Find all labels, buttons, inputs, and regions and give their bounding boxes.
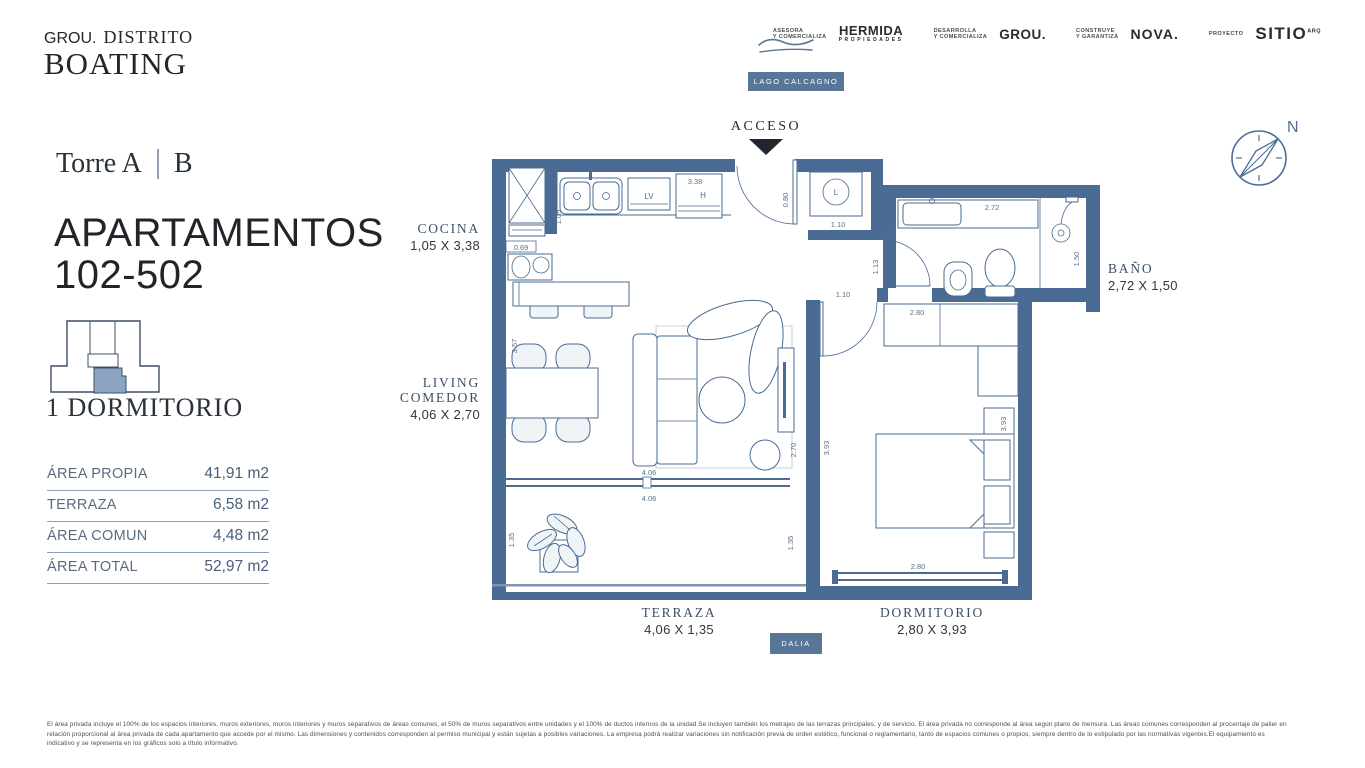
brand-distrito: DISTRITO (103, 27, 193, 48)
dim-3-93-a: 3.93 (822, 441, 831, 456)
dim-0-69: 0.69 (514, 243, 529, 252)
washer: L (810, 172, 862, 216)
kitchen-sink (560, 172, 622, 214)
disclaimer-line: indicativo y se representa en los gráfic… (47, 739, 1292, 749)
dishwasher-label: LV (644, 192, 654, 201)
fridge (509, 168, 545, 236)
bidet (944, 262, 972, 296)
dim-1-13: 1.13 (871, 260, 880, 275)
dim-1-50-b: 1.50 (1072, 252, 1081, 267)
table-row: ÁREA PROPIA 41,91 m2 (47, 460, 269, 491)
tower-title: Torre A B (56, 148, 193, 180)
room-label-bano: BAÑO 2,72 X 1,50 (1108, 261, 1258, 293)
area-label: ÁREA COMUN (47, 528, 148, 544)
room-dims: 4,06 X 1,35 (619, 622, 739, 637)
room-name: BAÑO (1108, 261, 1258, 276)
dim-1-35-b: 1.35 (786, 536, 795, 551)
compass-icon: N (1225, 116, 1310, 194)
partner-grou: DESARROLLA Y COMERCIALIZA GROU. (934, 27, 1046, 42)
toilet (985, 249, 1015, 297)
tv-console (778, 348, 794, 432)
building-locator-icon (48, 310, 163, 396)
table-row: TERRAZA 6,58 m2 (47, 491, 269, 522)
room-label-living: LIVING COMEDOR 4,06 X 2,70 (370, 375, 480, 422)
entrance-door (737, 160, 797, 224)
title-line1: APARTAMENTOS (54, 212, 384, 254)
breakfast-bar (513, 282, 629, 318)
shower (1040, 197, 1078, 288)
room-dims: 2,80 X 3,93 (872, 622, 992, 637)
room-dims: 1,05 X 3,38 (355, 238, 480, 253)
sofa (633, 292, 792, 470)
bedroom-window (832, 570, 1008, 584)
nightstand-bottom (984, 532, 1014, 558)
partner-logos: ASESORA Y COMERCIALIZA HERMIDA PROPIEDAD… (773, 20, 1321, 48)
area-value: 52,97 m2 (204, 558, 269, 576)
dim-4-06-a: 4.06 (642, 468, 657, 477)
plant (524, 510, 589, 575)
dim-3-93-b: 3.93 (999, 417, 1008, 432)
dim-2-70: 2.70 (789, 443, 798, 458)
room-label-cocina: COCINA 1,05 X 3,38 (355, 221, 480, 253)
terrace-railing (492, 584, 806, 587)
disclaimer-line: El área privada incluye el 100% de los e… (47, 720, 1292, 730)
page-title: APARTAMENTOS 102-502 (54, 212, 384, 296)
area-table: ÁREA PROPIA 41,91 m2 TERRAZA 6,58 m2 ÁRE… (47, 460, 269, 584)
room-name: LIVING COMEDOR (370, 375, 480, 405)
room-name: TERRAZA (619, 605, 739, 620)
dim-1-10-b: 1.10 (836, 290, 851, 299)
legal-disclaimer: El área privada incluye el 100% de los e… (47, 720, 1292, 749)
bedroom-door (820, 302, 877, 356)
dim-1-50-a: 1.50 (885, 227, 894, 242)
north-label: N (1287, 119, 1299, 136)
partner-sitio: PROYECTO SITIOARQ (1209, 24, 1321, 44)
floorplan-brochure-page: { "brand": { "grou": "GROU.", "distrito"… (0, 0, 1365, 768)
area-value: 41,91 m2 (204, 465, 269, 483)
dim-2-72: 2.72 (985, 203, 1000, 212)
dim-3-38: 3.38 (688, 177, 703, 186)
oven: 3.38 H (676, 174, 722, 218)
title-line2: 102-502 (54, 254, 384, 296)
partner-role: DESARROLLA Y COMERCIALIZA (934, 28, 988, 41)
nova-logo: NOVA. (1131, 26, 1179, 42)
street-badge: DALIA (770, 633, 822, 654)
tower-a: Torre A (56, 148, 142, 180)
room-name: DORMITORIO (872, 605, 992, 620)
dim-2-80-a: 2.80 (910, 308, 925, 317)
room-dims: 2,72 X 1,50 (1108, 278, 1258, 293)
sitio-logo: SITIOARQ (1255, 24, 1321, 44)
wave-icon (755, 33, 817, 57)
lake-badge: LAGO CALCAGNO (748, 72, 844, 91)
partner-role: CONSTRUYE Y GARANTIZA (1076, 28, 1119, 41)
brand-boating: BOATING (44, 46, 193, 82)
laundry-tub: 0.69 (506, 241, 552, 280)
dim-2-80-b: 2.80 (911, 562, 926, 571)
area-label: ÁREA PROPIA (47, 466, 148, 482)
access-label: ACCESO (716, 119, 816, 135)
tower-b: B (174, 148, 193, 180)
highlighted-unit (94, 368, 126, 393)
partner-nova: CONSTRUYE Y GARANTIZA NOVA. (1076, 26, 1179, 42)
living-window (506, 477, 790, 488)
washer-label: L (834, 188, 839, 197)
room-label-dormitorio: DORMITORIO 2,80 X 3,93 (872, 605, 992, 637)
grou-logo: GROU. (999, 27, 1046, 42)
room-name: COCINA (355, 221, 480, 236)
tower-divider (157, 149, 159, 179)
dishwasher: LV (628, 178, 670, 210)
partner-role: PROYECTO (1209, 31, 1244, 38)
table-row: ÁREA TOTAL 52,97 m2 (47, 553, 269, 584)
dim-1-35-a: 1.35 (507, 533, 516, 548)
area-value: 4,48 m2 (213, 527, 269, 545)
hermida-logo: HERMIDA (839, 25, 904, 37)
dim-1-10-a: 1.10 (831, 220, 846, 229)
dim-4-06-b: 4.06 (642, 494, 657, 503)
room-dims: 4,06 X 2,70 (370, 407, 480, 422)
disclaimer-line: relación proporcional al área privada de… (47, 730, 1292, 740)
bedrooms-label: 1 DORMITORIO (46, 393, 243, 423)
table-row: ÁREA COMUN 4,48 m2 (47, 522, 269, 553)
hermida-sub: PROPIEDADES (839, 37, 904, 43)
bathroom-vanity (898, 199, 1038, 229)
area-label: TERRAZA (47, 497, 117, 513)
area-value: 6,58 m2 (213, 496, 269, 514)
oven-label: H (700, 191, 706, 200)
floor-plan: LV 3.38 H 0.69 L (430, 150, 1120, 620)
brand-logo: GROU. DISTRITO BOATING (44, 27, 193, 82)
room-label-terraza: TERRAZA 4,06 X 1,35 (619, 605, 739, 637)
area-label: ÁREA TOTAL (47, 559, 138, 575)
sitio-arq: ARQ (1307, 28, 1321, 34)
dim-3-57: 3.57 (510, 339, 519, 354)
dim-1-05: 1.05 (554, 210, 563, 225)
dim-0-80: 0.80 (781, 193, 790, 208)
dining-set (506, 344, 598, 442)
closet (884, 304, 1018, 396)
bed (876, 434, 1014, 528)
